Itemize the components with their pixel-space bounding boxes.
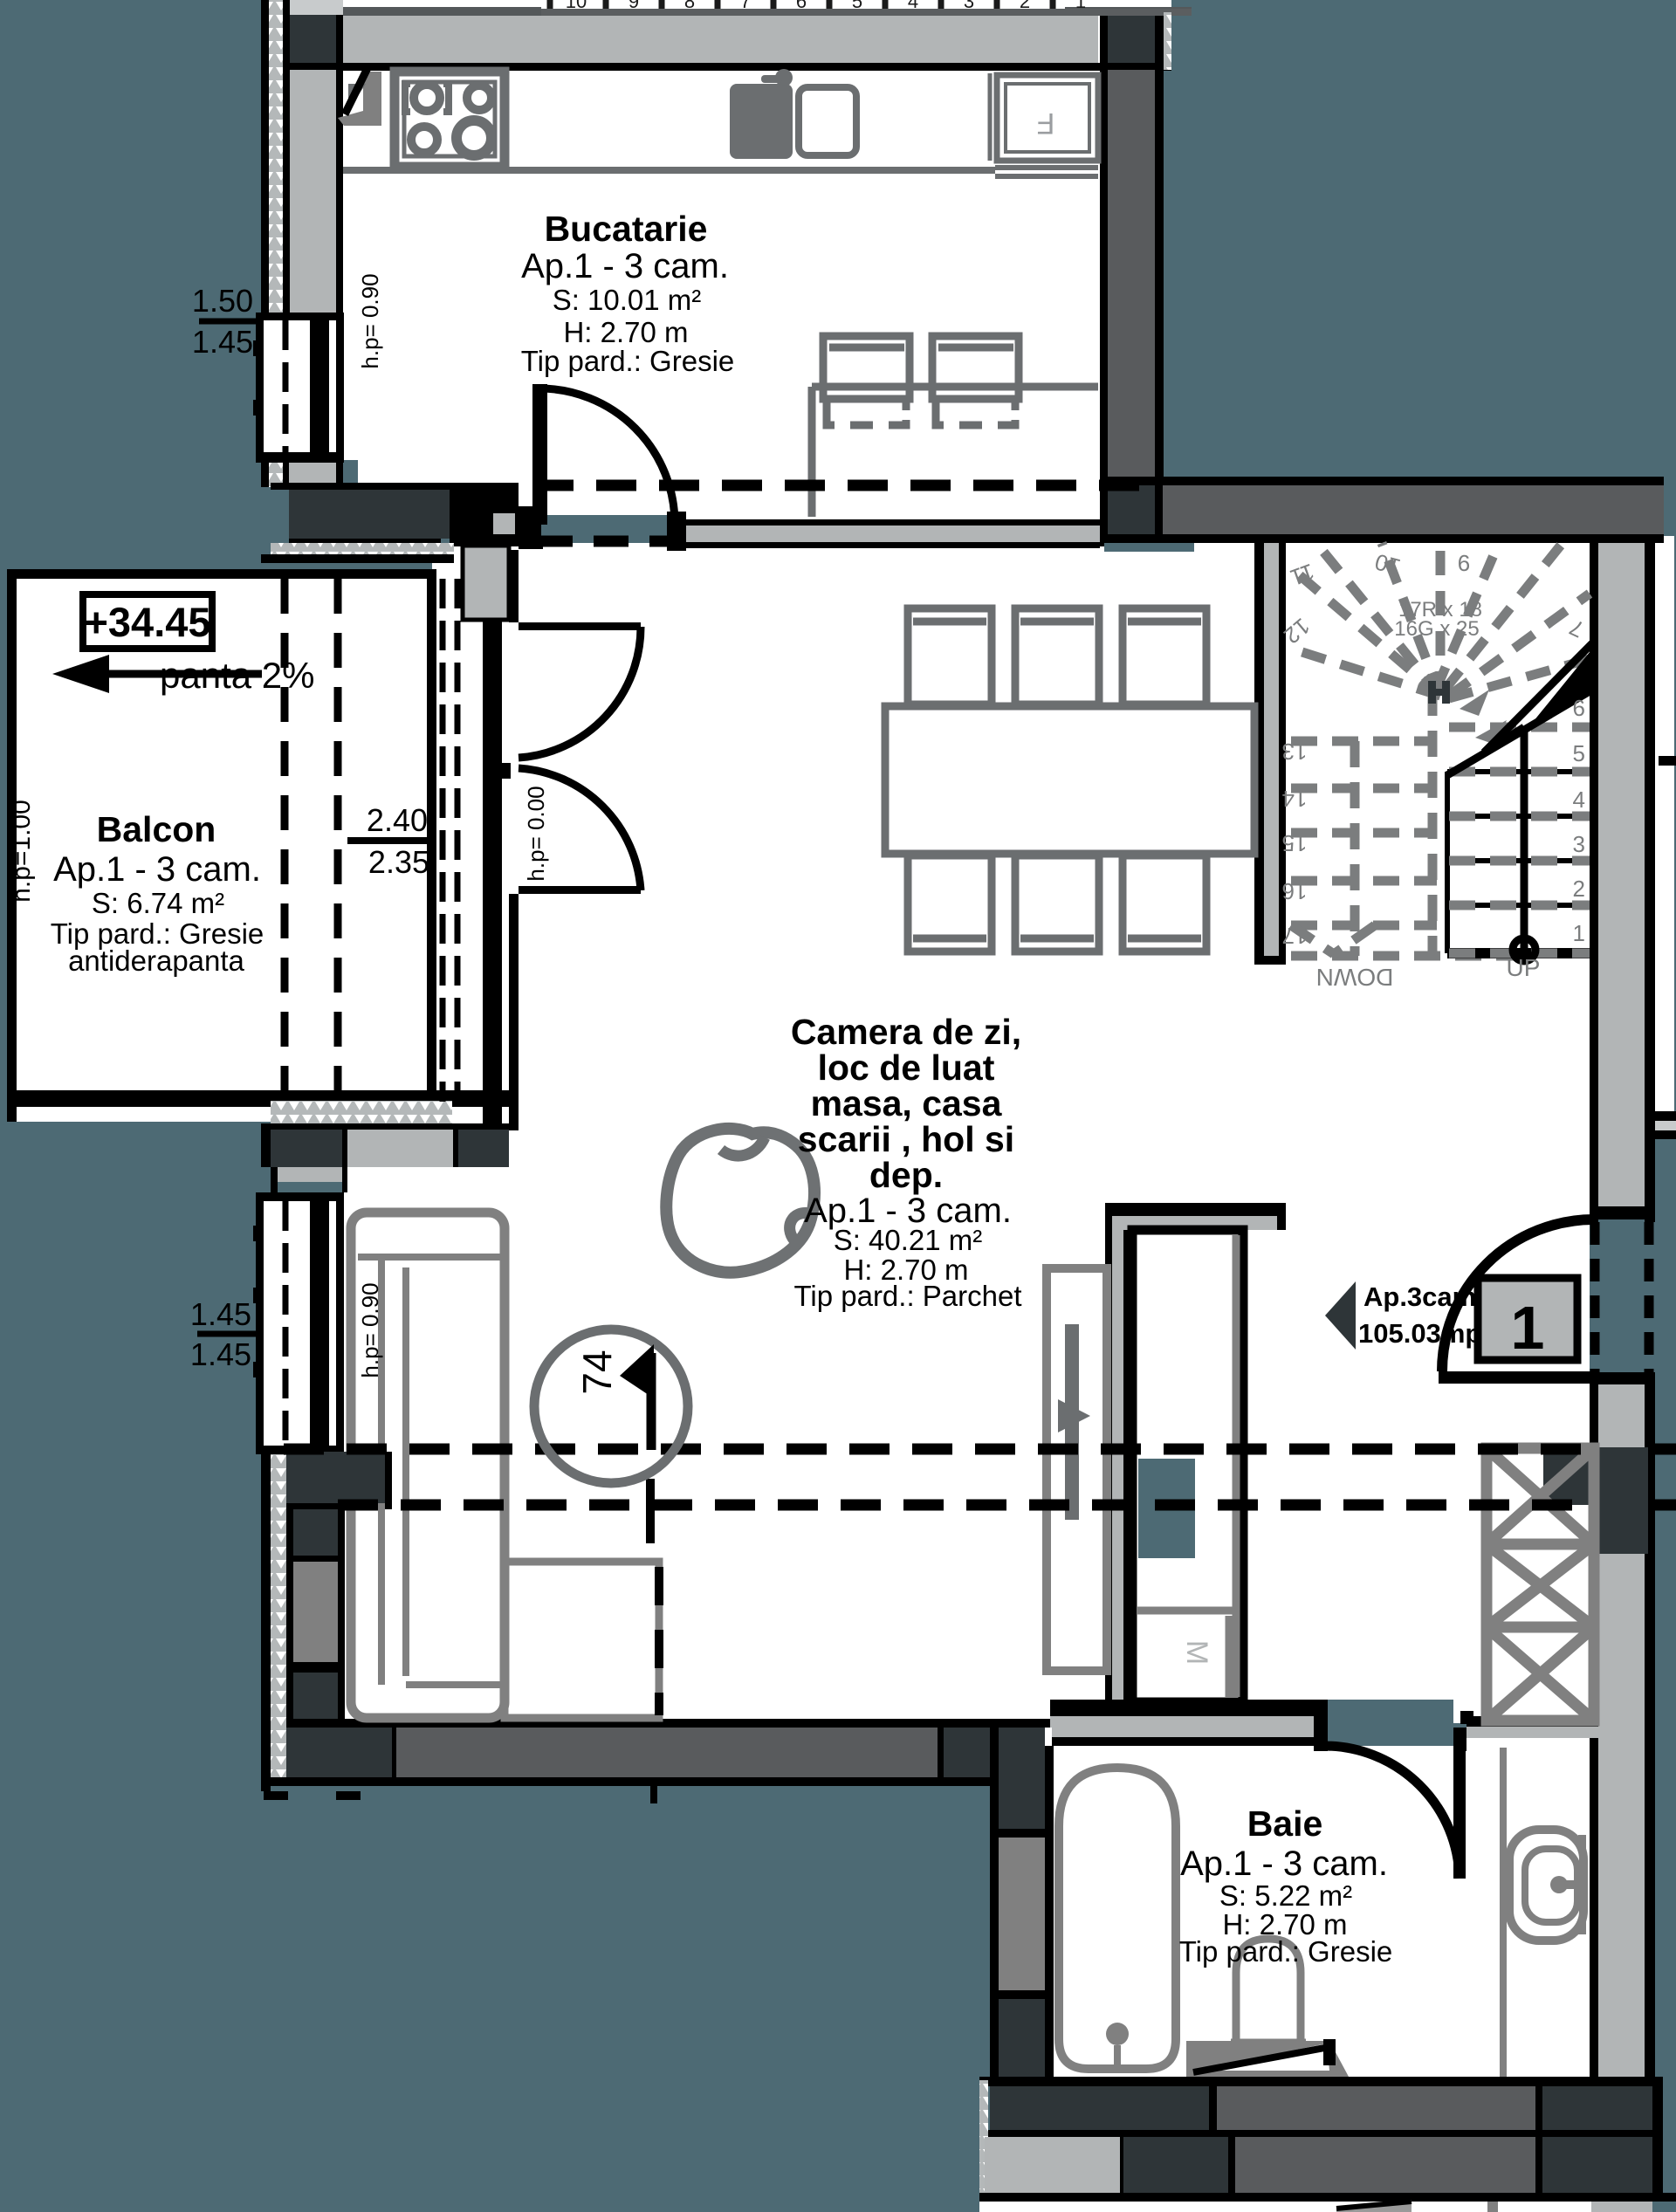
svg-text:1: 1 [1573, 920, 1585, 946]
svg-text:S: 5.22 m²: S: 5.22 m² [1219, 1879, 1352, 1912]
svg-text:1.50: 1.50 [192, 283, 253, 319]
svg-text:masa, casa: masa, casa [811, 1083, 1003, 1123]
svg-text:h.p= 0.90: h.p= 0.90 [357, 273, 383, 368]
svg-text:6: 6 [1573, 695, 1585, 721]
svg-text:Ap.1 - 3 cam.: Ap.1 - 3 cam. [53, 850, 261, 889]
svg-text:2.35: 2.35 [368, 844, 429, 880]
svg-text:Ap.3cam: Ap.3cam [1363, 1281, 1476, 1312]
svg-text:h.p= 0.90: h.p= 0.90 [357, 1282, 383, 1377]
svg-text:dep.: dep. [869, 1155, 943, 1195]
svg-text:Bucatarie: Bucatarie [545, 209, 708, 249]
svg-text:16: 16 [1282, 878, 1308, 904]
svg-text:Ap.1 - 3 cam.: Ap.1 - 3 cam. [521, 247, 729, 285]
svg-text:15: 15 [1282, 830, 1308, 856]
svg-text:2: 2 [1573, 876, 1585, 902]
svg-text:Tip pard.: Gresie: Tip pard.: Gresie [1179, 1935, 1393, 1968]
svg-text:M: M [1180, 1640, 1213, 1665]
svg-text:Ap.1 - 3 cam.: Ap.1 - 3 cam. [1180, 1844, 1388, 1883]
svg-text:105.03mp: 105.03mp [1358, 1318, 1481, 1349]
svg-text:14: 14 [1282, 786, 1308, 812]
svg-text:S: 6.74 m²: S: 6.74 m² [92, 887, 224, 919]
svg-text:Camera de zi,: Camera de zi, [791, 1012, 1021, 1052]
svg-text:74: 74 [574, 1350, 620, 1394]
svg-text:+34.45: +34.45 [84, 599, 210, 645]
svg-text:1.45: 1.45 [190, 1336, 251, 1372]
svg-text:9: 9 [1458, 550, 1470, 576]
svg-text:DOWN: DOWN [1316, 964, 1394, 991]
svg-text:4: 4 [1573, 787, 1585, 813]
svg-text:H: 2.70 m: H: 2.70 m [563, 316, 688, 348]
svg-text:Tip pard.: Gresie: Tip pard.: Gresie [521, 345, 735, 377]
svg-text:Balcon: Balcon [97, 809, 216, 849]
svg-text:h.p=1.00: h.p=1.00 [7, 800, 36, 903]
svg-text:F: F [1037, 106, 1055, 140]
svg-text:5: 5 [1573, 740, 1585, 766]
svg-text:antiderapanta: antiderapanta [68, 945, 244, 977]
svg-text:S: 40.21 m²: S: 40.21 m² [834, 1224, 983, 1256]
svg-text:2.40: 2.40 [367, 802, 428, 838]
svg-text:1.45: 1.45 [190, 1296, 251, 1332]
svg-text:UP: UP [1507, 954, 1541, 981]
svg-text:Tip pard.: Parchet: Tip pard.: Parchet [793, 1280, 1021, 1312]
svg-text:1: 1 [1511, 1294, 1545, 1362]
svg-text:13: 13 [1282, 738, 1308, 765]
svg-text:1.45: 1.45 [192, 324, 253, 360]
svg-text:16G x 25: 16G x 25 [1394, 617, 1479, 641]
svg-text:Baie: Baie [1247, 1803, 1323, 1844]
svg-text:3: 3 [1573, 831, 1585, 857]
svg-text:h.p= 0.00: h.p= 0.00 [523, 786, 549, 881]
svg-text:17: 17 [1282, 923, 1308, 949]
svg-text:panta 2%: panta 2% [160, 655, 314, 696]
svg-text:scarii , hol si: scarii , hol si [798, 1119, 1014, 1159]
svg-text:loc de luat: loc de luat [818, 1048, 995, 1088]
svg-text:S: 10.01 m²: S: 10.01 m² [553, 284, 702, 316]
